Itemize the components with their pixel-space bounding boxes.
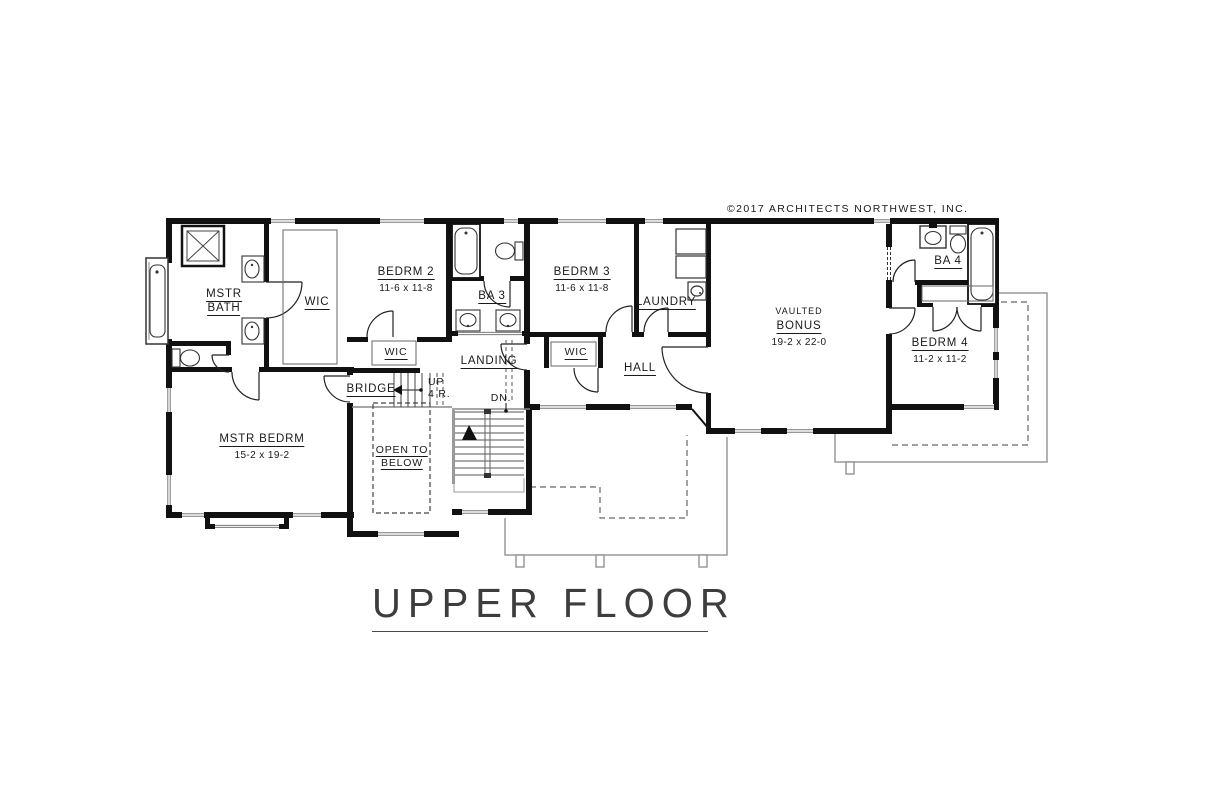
room-label-mstr-bedrm: MSTR BEDRM 15-2 x 19-2 <box>219 433 304 462</box>
stairs-down-label: DN. <box>491 392 511 405</box>
porch-post <box>516 555 524 567</box>
fixture-laundry <box>676 229 706 300</box>
fixture-shower <box>182 226 224 266</box>
porch-outline-right <box>835 293 1047 462</box>
stairs-up-bridge <box>393 373 430 407</box>
title-underline <box>372 631 708 632</box>
fixture-master-tub <box>146 258 168 344</box>
floor-plan-sheet: ©2017 ARCHITECTS NORTHWEST, INC. MSTR BA… <box>0 0 1224 792</box>
porch-post <box>596 555 604 567</box>
room-label-bridge: BRIDGE <box>347 383 396 397</box>
porch-outline-center <box>505 437 727 555</box>
room-label-mstr-bath: MSTR BATH <box>206 288 242 316</box>
room-label-wic-bedrm2: WIC <box>385 346 408 360</box>
fixture-master-toilet <box>172 349 200 367</box>
copyright-note: ©2017 ARCHITECTS NORTHWEST, INC. <box>727 203 968 215</box>
room-label-bonus: VAULTED BONUS 19-2 x 22-0 <box>772 305 827 349</box>
room-label-wic-master: WIC <box>305 296 330 310</box>
room-label-bedrm2: BEDRM 2 11-6 x 11-8 <box>378 266 435 295</box>
room-label-laundry: LAUNDRY <box>636 296 696 310</box>
cased-opening-dashes <box>886 247 892 280</box>
room-label-hall: HALL <box>624 362 656 376</box>
room-label-ba3: BA 3 <box>478 290 506 304</box>
stairs-up-label: UP 4 R. <box>428 376 450 400</box>
room-label-bedrm3: BEDRM 3 11-6 x 11-8 <box>554 266 611 295</box>
room-label-landing: LANDING <box>461 355 518 369</box>
page-title: UPPER FLOOR <box>372 582 708 628</box>
roof-line-center <box>530 435 687 518</box>
room-label-ba4: BA 4 <box>934 255 962 269</box>
porch-post <box>846 462 854 474</box>
room-label-wic-bedrm3: WIC <box>565 346 588 360</box>
interior-walls <box>166 218 999 433</box>
porch-post <box>699 555 707 567</box>
roof-line-right <box>892 302 1028 445</box>
fixture-master-sinks <box>242 256 264 344</box>
open-to-below-label: OPEN TO BELOW <box>376 444 428 470</box>
room-label-bedrm4: BEDRM 4 11-2 x 11-2 <box>912 337 969 366</box>
floor-plan-drawing <box>0 0 1224 792</box>
